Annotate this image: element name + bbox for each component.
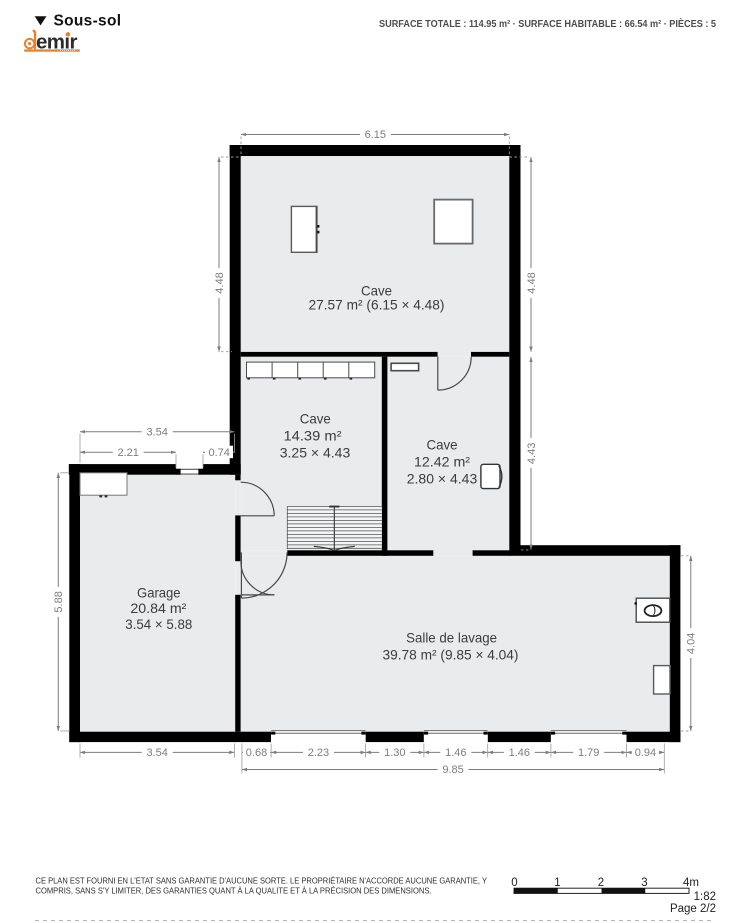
svg-text:CE PLAN EST FOURNI EN L'ETAT S: CE PLAN EST FOURNI EN L'ETAT SANS GARANT…: [36, 877, 488, 886]
svg-text:1.30: 1.30: [384, 747, 405, 759]
svg-text:2.80 × 4.43: 2.80 × 4.43: [407, 471, 478, 487]
svg-text:SURFACE TOTALE : 114.95 m² · S: SURFACE TOTALE : 114.95 m² · SURFACE HAB…: [379, 17, 716, 30]
svg-text:1.46: 1.46: [445, 747, 466, 759]
svg-text:1:82: 1:82: [694, 891, 716, 903]
svg-text:2: 2: [598, 877, 604, 889]
svg-text:12.42 m²: 12.42 m²: [414, 454, 470, 470]
svg-text:0: 0: [511, 877, 517, 889]
svg-text:1: 1: [554, 877, 560, 889]
svg-text:1.79: 1.79: [578, 747, 599, 759]
svg-text:20.84 m²: 20.84 m²: [130, 600, 186, 616]
svg-text:1.46: 1.46: [509, 747, 530, 759]
svg-text:39.78 m² (9.85 × 4.04): 39.78 m² (9.85 × 4.04): [383, 647, 519, 663]
svg-text:0.68: 0.68: [246, 747, 267, 759]
svg-text:4m: 4m: [683, 877, 699, 889]
svg-text:0.74: 0.74: [208, 447, 229, 459]
svg-text:3.54 × 5.88: 3.54 × 5.88: [125, 616, 192, 632]
svg-text:4.48: 4.48: [526, 272, 538, 293]
svg-text:3.54: 3.54: [146, 747, 167, 759]
svg-text:3.25 × 4.43: 3.25 × 4.43: [280, 445, 351, 461]
svg-text:3.54: 3.54: [146, 426, 167, 438]
svg-text:Garage: Garage: [137, 585, 181, 601]
svg-text:6.15: 6.15: [365, 129, 386, 141]
svg-text:Cave: Cave: [300, 411, 331, 427]
svg-text:Sous-sol: Sous-sol: [54, 13, 122, 30]
svg-text:Salle de lavage: Salle de lavage: [406, 630, 497, 646]
svg-text:Cave: Cave: [427, 437, 458, 453]
svg-text:9.85: 9.85: [442, 764, 463, 776]
svg-text:2.23: 2.23: [308, 747, 329, 759]
svg-text:14.39 m²: 14.39 m²: [284, 428, 342, 444]
svg-text:4.48: 4.48: [214, 272, 226, 293]
svg-text:4.43: 4.43: [526, 443, 538, 464]
svg-text:5.88: 5.88: [53, 591, 65, 612]
svg-text:3: 3: [641, 877, 647, 889]
svg-text:27.57 m² (6.15 × 4.48): 27.57 m² (6.15 × 4.48): [309, 297, 445, 313]
svg-text:COMPRIS, SANS S'Y LIMITER, DES: COMPRIS, SANS S'Y LIMITER, DES GARANTIES…: [36, 887, 432, 896]
svg-text:2.21: 2.21: [117, 447, 138, 459]
svg-text:Page 2/2: Page 2/2: [670, 903, 716, 915]
svg-text:0.94: 0.94: [635, 747, 656, 759]
svg-text:4.04: 4.04: [686, 633, 698, 654]
